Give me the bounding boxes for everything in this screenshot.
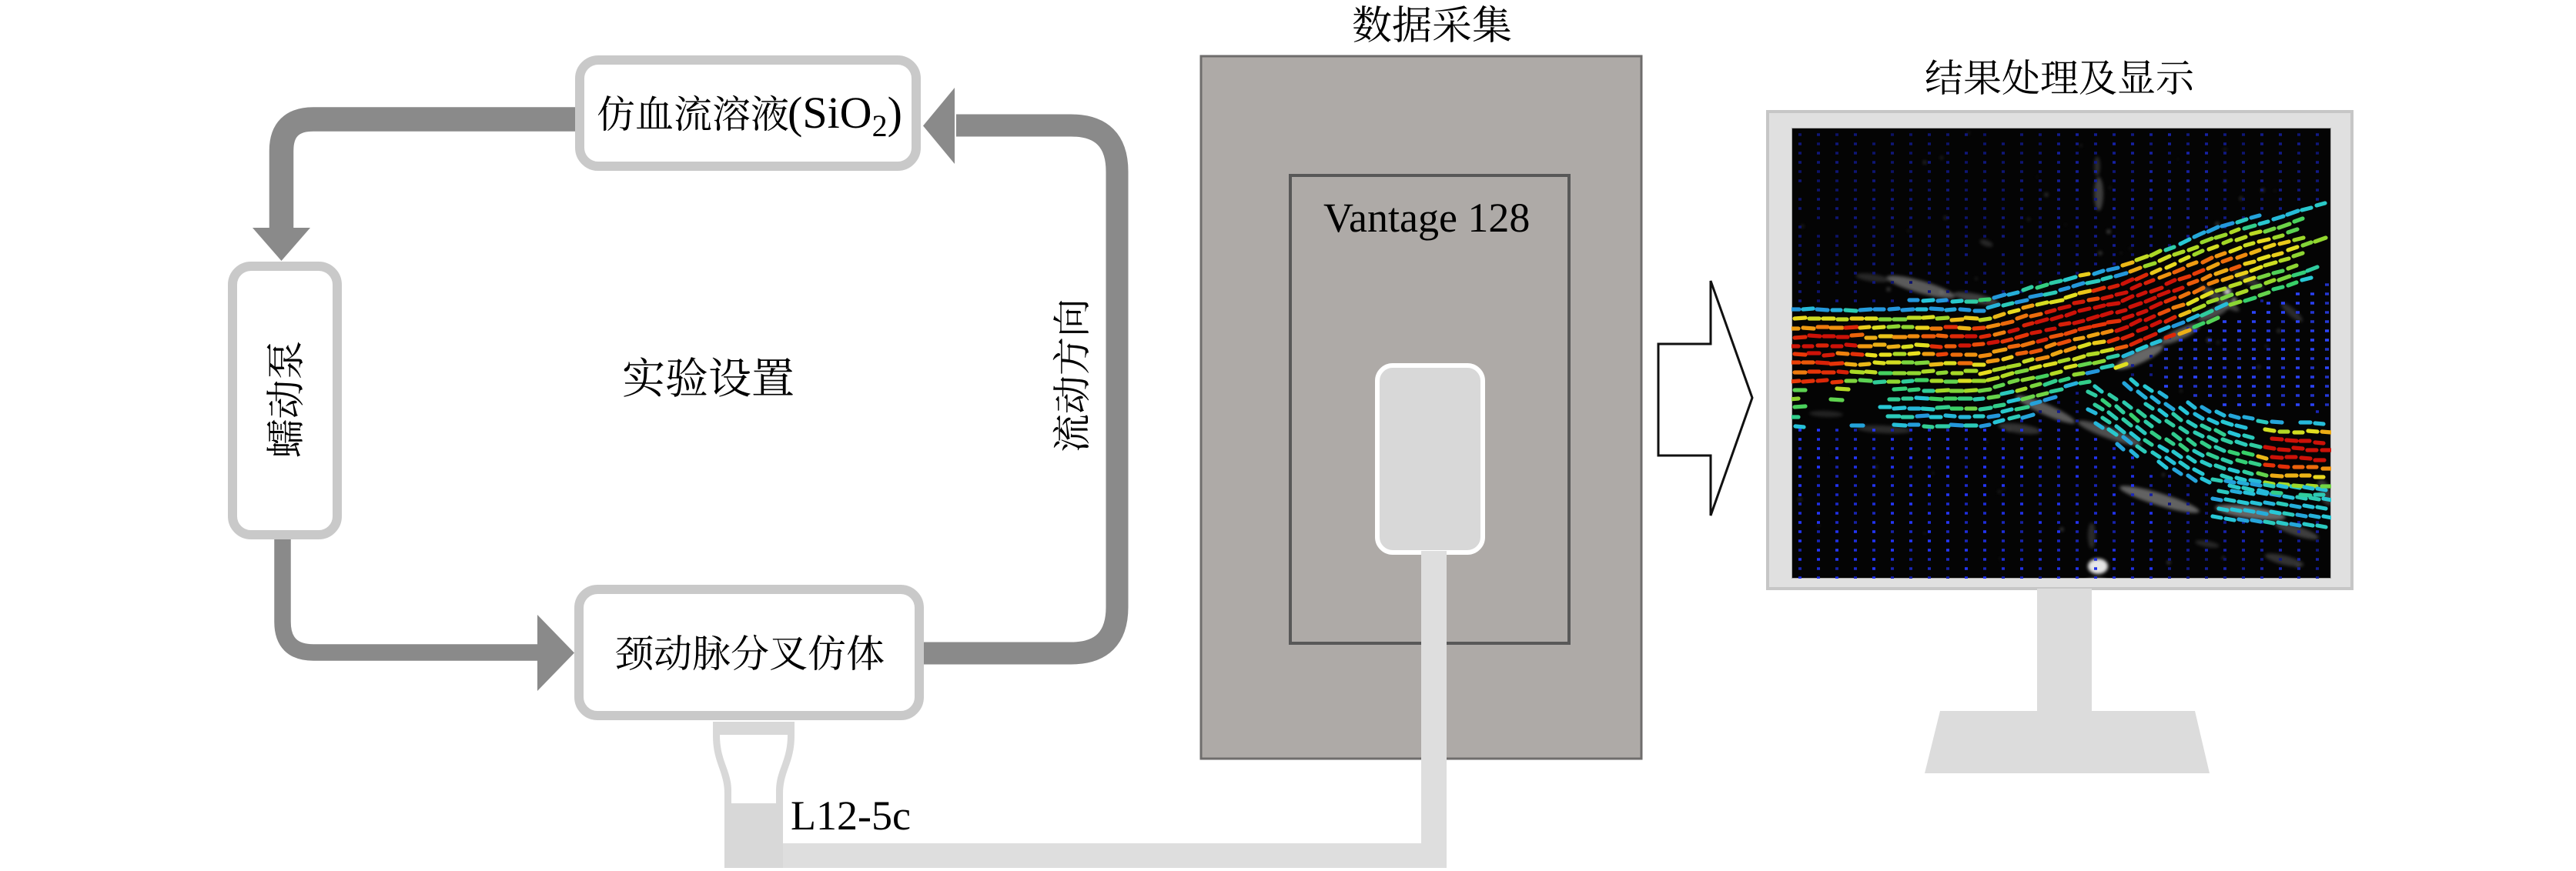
svg-text:L12-5c: L12-5c: [791, 793, 911, 839]
svg-text:Vantage 128: Vantage 128: [1323, 195, 1530, 241]
